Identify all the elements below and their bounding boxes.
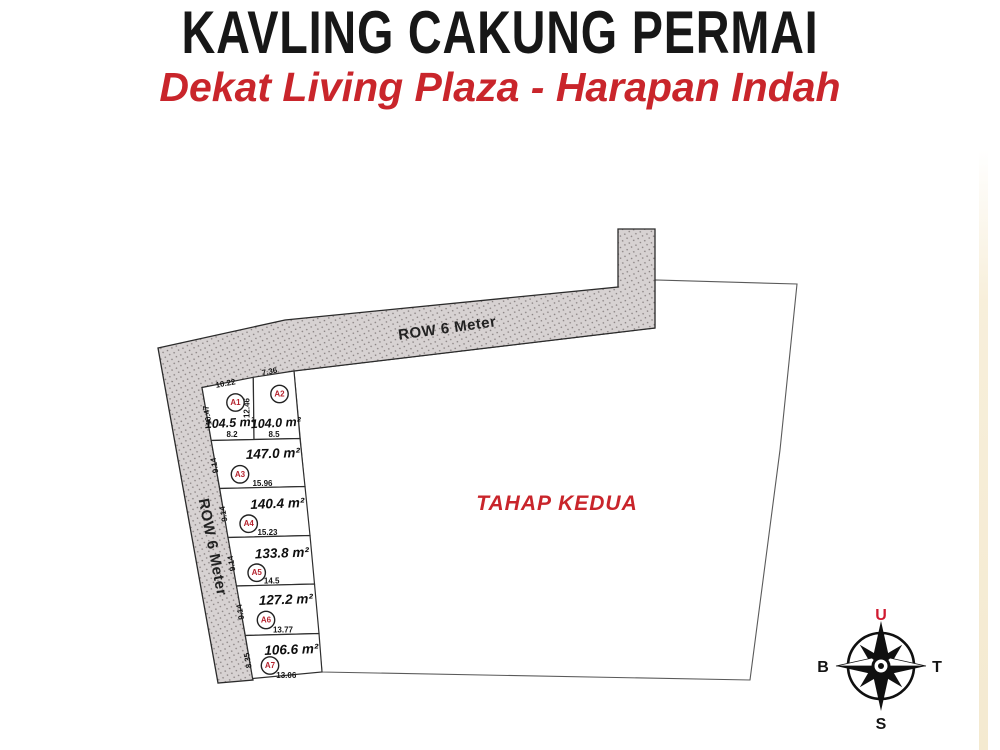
- plot-A4-dim-bottom: 15.23: [257, 528, 278, 537]
- plot-A7-dim-bottom: 13.06: [276, 671, 297, 680]
- plot-A1-badge: A1: [230, 398, 241, 407]
- plot-A3-badge: A3: [235, 470, 246, 479]
- plot-A7-badge: A7: [265, 661, 276, 670]
- plot-A2-area: 104.0 m²: [250, 415, 302, 432]
- plot-A5: 9.14 14.5 133.8 m² A5: [226, 536, 315, 587]
- plot-A2-badge: A2: [274, 390, 285, 399]
- plot-A2: 7.36 8.5 104.0 m² A2: [250, 366, 302, 440]
- plot-A5-badge: A5: [252, 568, 263, 577]
- compass-west-label: B: [817, 659, 829, 676]
- plot-A6: 9.14 13.77 127.2 m² A6: [234, 584, 319, 636]
- plot-A3: 9.14 15.96 147.0 m² A3: [209, 439, 305, 489]
- plot-A7: 8.35 13.06 106.6 m² A7: [242, 634, 322, 681]
- plot-A2-dim-bottom: 8.5: [268, 430, 280, 439]
- plot-A4: 9.14 15.23 140.4 m² A4: [218, 487, 310, 538]
- plot-A6-area: 127.2 m²: [259, 591, 314, 608]
- plot-A1-area: 104.5 m²: [204, 415, 256, 432]
- plot-A7-area: 106.6 m²: [264, 641, 319, 658]
- plot-A5-dim-bottom: 14.5: [264, 577, 280, 586]
- plot-A1: 10.22 10.47 12.46 8.2 104.5 m² A1: [201, 377, 256, 440]
- plot-A3-area: 147.0 m²: [246, 445, 301, 462]
- compass-hub-dot: [878, 663, 884, 669]
- plot-A6-dim-bottom: 13.77: [273, 626, 294, 635]
- plot-A4-area: 140.4 m²: [250, 495, 305, 512]
- compass-south-label: S: [876, 716, 887, 733]
- plot-A3-dim-bottom: 15.96: [252, 479, 273, 488]
- site-plan-svg: TAHAP KEDUA ROW 6 Meter ROW 6 Meter 10.2…: [0, 0, 1000, 750]
- plot-A6-badge: A6: [261, 616, 272, 625]
- compass-east-label: T: [932, 659, 942, 676]
- phase-two-label: TAHAP KEDUA: [476, 492, 638, 515]
- compass-north-label: U: [875, 607, 887, 624]
- plot-A5-area: 133.8 m²: [255, 545, 310, 562]
- plot-A1-dim-bottom: 8.2: [226, 430, 238, 439]
- plot-A4-badge: A4: [244, 519, 255, 528]
- compass-rose: U T S B: [817, 607, 942, 733]
- flyer-canvas: KAVLING CAKUNG PERMAI Dekat Living Plaza…: [0, 0, 1000, 750]
